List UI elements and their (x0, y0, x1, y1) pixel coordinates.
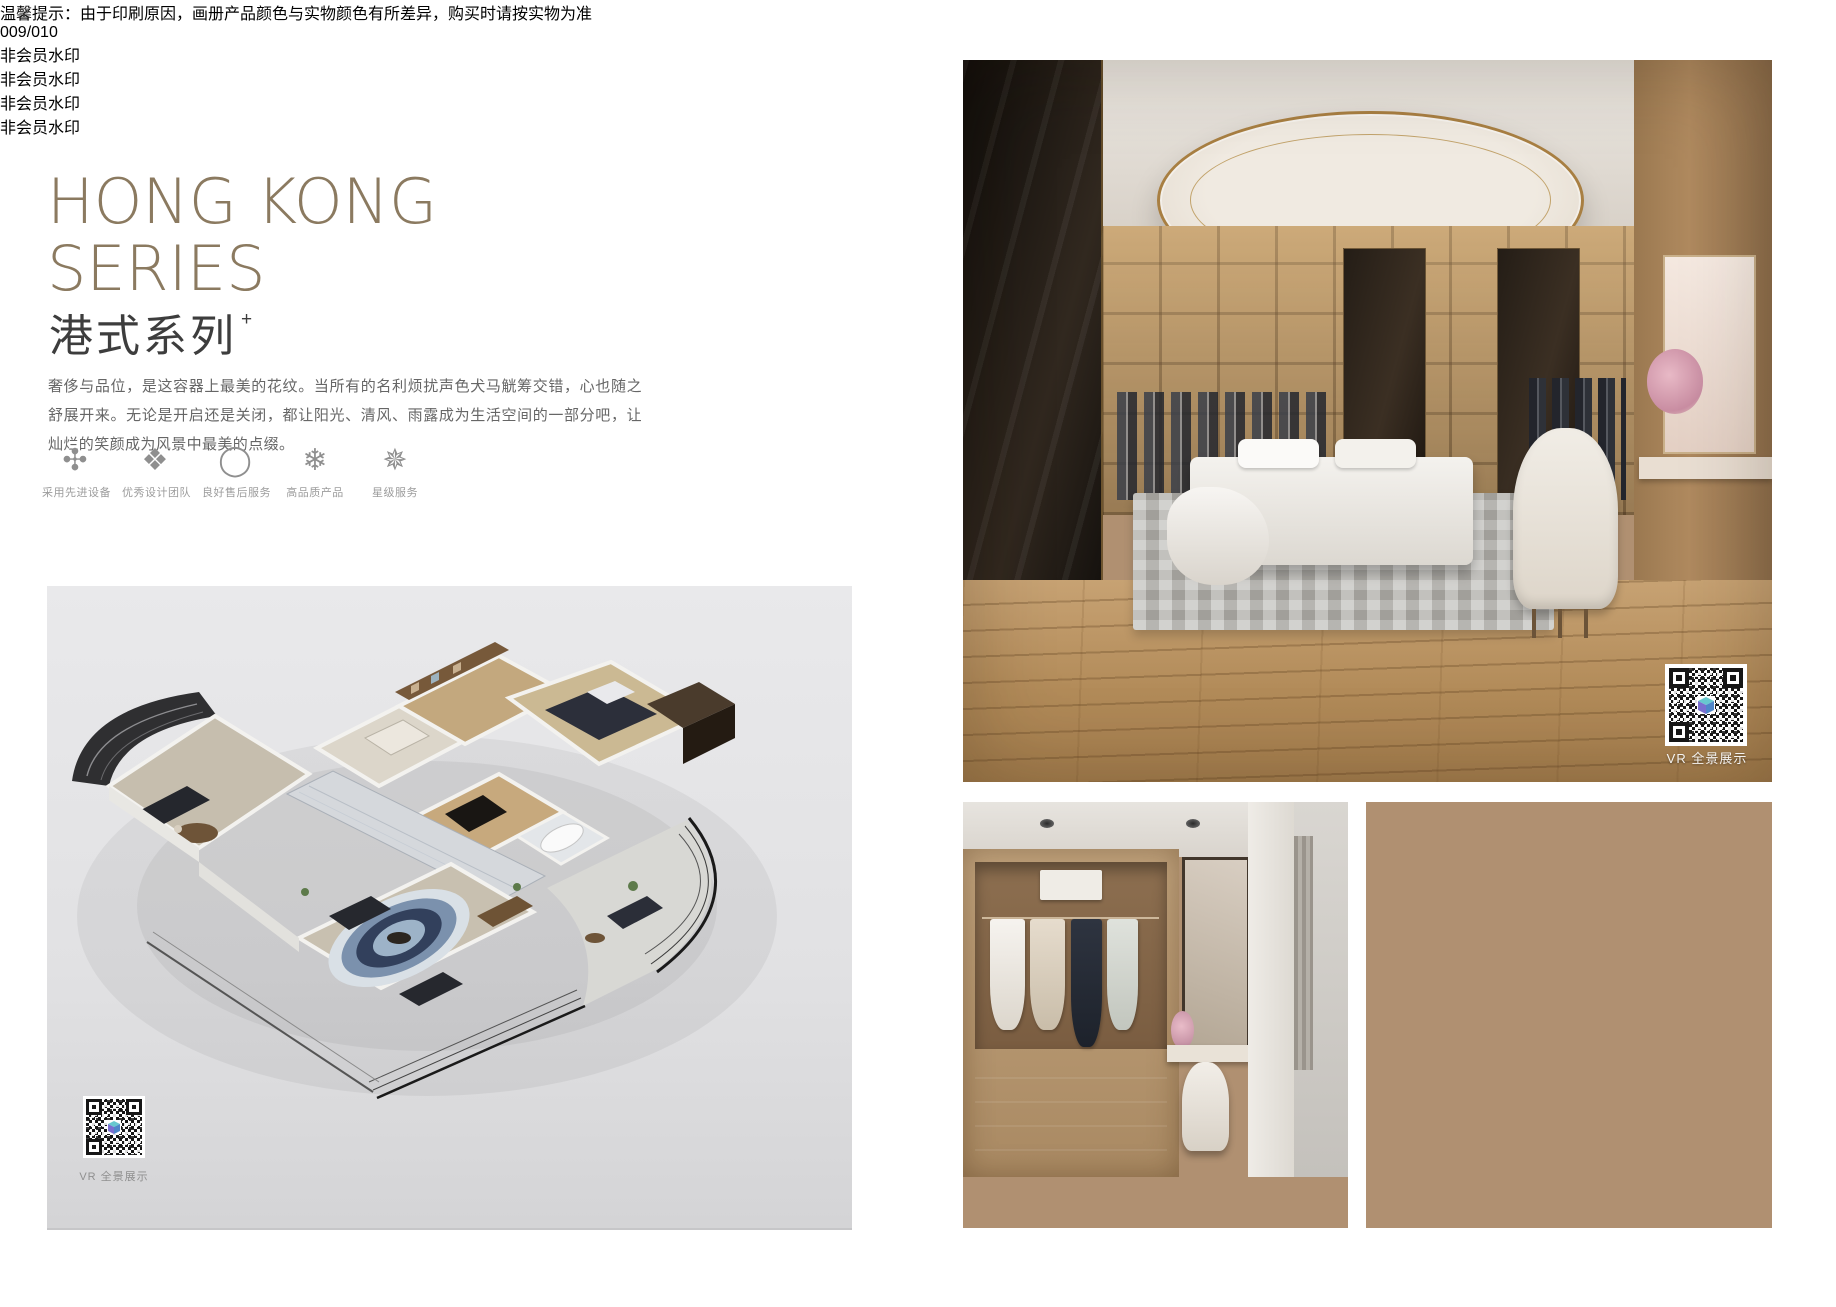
feature-item: ❖ 优秀设计团队 (122, 443, 188, 500)
disclaimer-text: 温馨提示：由于印刷原因，画册产品颜色与实物颜色有所差异，购买时请按实物为准 (0, 0, 1836, 24)
feature-item: ◯ 良好售后服务 (202, 443, 268, 500)
snowflake-icon: ❄ (282, 443, 348, 479)
drum-side-table (1302, 1066, 1337, 1126)
dressing-area-photo (963, 802, 1348, 1228)
white-pillar (1248, 802, 1294, 1177)
star-ornament-icon: ✵ (362, 443, 428, 479)
wardrobe-room-photo (963, 60, 1772, 782)
feature-label: 良好售后服务 (202, 484, 268, 500)
page-title-line2: SERIES (47, 235, 437, 302)
feature-item: ✵ 星级服务 (362, 443, 428, 500)
subtitle-plus: + (241, 309, 255, 330)
hanging-garment (1030, 919, 1065, 1030)
vanity-chair (1182, 1062, 1228, 1151)
hanging-garment (1107, 919, 1138, 1030)
feature-label: 高品质产品 (282, 484, 348, 500)
hanging-garment (990, 919, 1025, 1030)
hanging-garment (1071, 919, 1102, 1047)
closet-shelf-detail-photo (1366, 802, 1772, 1228)
page-title: HONG KONG SERIES (47, 168, 437, 302)
page-number: 009/010 (0, 24, 1836, 42)
vignette (963, 60, 1772, 782)
qr-code-floorplan (83, 1096, 145, 1158)
feature-label: 优秀设计团队 (122, 484, 188, 500)
subtitle-text: 港式系列 (49, 312, 237, 361)
spotlight (1040, 819, 1054, 828)
ring-icon: ◯ (202, 443, 268, 479)
flower-ornament-icon: ✣ (42, 443, 108, 479)
catalog-page: HONG KONG SERIES 港式系列+ 奢侈与品位，是这容器上最美的花纹。… (0, 0, 1836, 1307)
feature-label: 星级服务 (362, 484, 428, 500)
floorplan-image (47, 586, 852, 1230)
feature-item: ❄ 高品质产品 (282, 443, 348, 500)
feature-label: 采用先进设备 (42, 484, 108, 500)
vr-panorama-label: VR 全景展示 (64, 1168, 164, 1184)
vanity-counter (1167, 1045, 1256, 1062)
drawer-unit (975, 1058, 1168, 1152)
page-title-line1: HONG KONG (47, 168, 437, 235)
page-subtitle-cn: 港式系列+ (49, 300, 255, 364)
feature-item: ✣ 采用先进设备 (42, 443, 108, 500)
feature-list: ✣ 采用先进设备 ❖ 优秀设计团队 ◯ 良好售后服务 ❄ 高品质产品 ✵ 星级服… (42, 443, 428, 500)
isometric-floorplan-render (47, 586, 852, 1228)
qr-code-main-photo (1665, 664, 1747, 746)
diamond-ornament-icon: ❖ (122, 443, 188, 479)
curtain (1294, 836, 1313, 1070)
storage-box (1040, 870, 1102, 900)
flowers (1171, 1011, 1194, 1049)
vr-panorama-label: VR 全景展示 (1655, 748, 1759, 767)
